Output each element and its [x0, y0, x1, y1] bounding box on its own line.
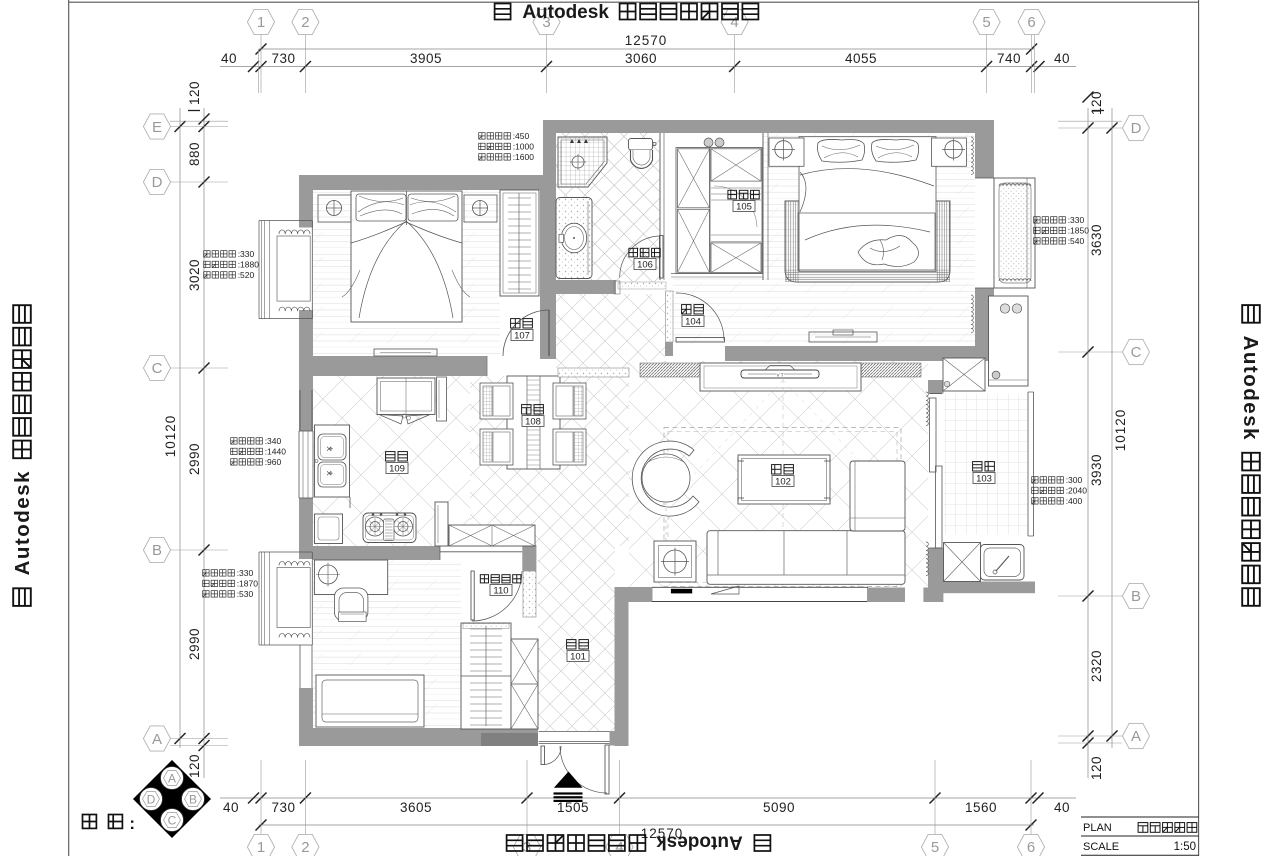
- svg-text:A: A: [152, 731, 162, 748]
- svg-text:D: D: [1131, 120, 1142, 137]
- svg-text:C: C: [168, 814, 177, 828]
- svg-text:3020: 3020: [187, 259, 202, 291]
- svg-text:5090: 5090: [763, 800, 795, 815]
- svg-text:3630: 3630: [1089, 224, 1104, 256]
- svg-text:740: 740: [997, 51, 1021, 66]
- svg-text::330: :330: [1068, 215, 1085, 225]
- svg-text:C: C: [152, 360, 163, 377]
- svg-text::530: :530: [237, 589, 254, 599]
- svg-text::1440: :1440: [265, 447, 287, 457]
- svg-text:120: 120: [187, 81, 202, 105]
- svg-text::330: :330: [237, 568, 254, 578]
- svg-text:2: 2: [301, 839, 309, 856]
- svg-text:A: A: [1131, 728, 1141, 745]
- svg-text:B: B: [152, 542, 162, 559]
- svg-text:40: 40: [1054, 800, 1070, 815]
- svg-text:3605: 3605: [400, 800, 432, 815]
- svg-text::1000: :1000: [513, 142, 535, 152]
- svg-text:110: 110: [493, 586, 508, 597]
- svg-text::330: :330: [238, 249, 255, 259]
- svg-text:V T: V T: [777, 373, 784, 378]
- svg-text:730: 730: [271, 51, 295, 66]
- svg-text:Autodesk: Autodesk: [11, 470, 34, 575]
- svg-text:3905: 3905: [410, 51, 442, 66]
- svg-text:102: 102: [775, 477, 791, 488]
- svg-text:5: 5: [931, 839, 939, 856]
- svg-text:4055: 4055: [845, 51, 877, 66]
- svg-text:104: 104: [685, 317, 701, 328]
- svg-text::400: :400: [1066, 496, 1083, 506]
- svg-text:107: 107: [514, 331, 530, 342]
- svg-text:Autodesk: Autodesk: [522, 2, 609, 23]
- svg-text:E: E: [152, 119, 162, 136]
- svg-text:120: 120: [187, 754, 202, 778]
- svg-text:6: 6: [1027, 839, 1035, 856]
- svg-text:C: C: [1131, 344, 1142, 361]
- svg-text:120: 120: [1089, 756, 1104, 780]
- svg-text:10120: 10120: [163, 415, 178, 458]
- svg-text::1600: :1600: [513, 152, 535, 162]
- svg-text::450: :450: [513, 131, 530, 141]
- svg-text:A: A: [168, 772, 176, 786]
- svg-text:6: 6: [1027, 14, 1035, 31]
- svg-text:1560: 1560: [965, 800, 997, 815]
- svg-text::1850: :1850: [1068, 226, 1090, 236]
- svg-text:2990: 2990: [187, 443, 202, 475]
- svg-text::2040: :2040: [1066, 486, 1088, 496]
- svg-text:D: D: [152, 174, 163, 191]
- svg-text:12570: 12570: [625, 33, 668, 48]
- svg-text:10120: 10120: [1113, 409, 1128, 452]
- svg-text:3060: 3060: [625, 51, 657, 66]
- svg-text:5: 5: [982, 14, 990, 31]
- svg-text:120: 120: [1089, 91, 1104, 115]
- svg-text:B: B: [1131, 588, 1141, 605]
- svg-text:1:50: 1:50: [1174, 841, 1196, 853]
- svg-text:SCALE: SCALE: [1083, 841, 1119, 853]
- svg-text::300: :300: [1066, 475, 1083, 485]
- svg-text:PLAN: PLAN: [1083, 822, 1112, 834]
- svg-text:B: B: [189, 793, 197, 807]
- svg-text:40: 40: [221, 51, 237, 66]
- svg-text::1880: :1880: [238, 260, 260, 270]
- svg-text:2990: 2990: [187, 628, 202, 660]
- svg-text::540: :540: [1068, 236, 1085, 246]
- svg-text::520: :520: [238, 270, 255, 280]
- svg-text:105: 105: [736, 202, 752, 213]
- svg-text:101: 101: [570, 652, 586, 663]
- svg-text:1: 1: [257, 14, 265, 31]
- svg-text:880: 880: [187, 142, 202, 166]
- svg-text:40: 40: [1054, 51, 1070, 66]
- svg-text::: :: [129, 814, 135, 833]
- svg-text:D: D: [147, 793, 156, 807]
- svg-text:Autodesk: Autodesk: [656, 832, 743, 853]
- svg-text::960: :960: [265, 457, 282, 467]
- svg-text:4: 4: [615, 839, 623, 856]
- svg-text:3930: 3930: [1089, 454, 1104, 486]
- svg-text:730: 730: [271, 800, 295, 815]
- svg-text:2320: 2320: [1089, 650, 1104, 682]
- svg-text:2: 2: [301, 14, 309, 31]
- svg-text:103: 103: [976, 474, 992, 485]
- svg-text:108: 108: [525, 417, 541, 428]
- svg-text:1: 1: [257, 839, 265, 856]
- svg-text:109: 109: [389, 464, 405, 475]
- svg-text:Autodesk: Autodesk: [1239, 336, 1262, 441]
- svg-text:106: 106: [637, 260, 653, 271]
- svg-text::340: :340: [265, 436, 282, 446]
- svg-text:1505: 1505: [557, 800, 589, 815]
- svg-text:40: 40: [223, 800, 239, 815]
- svg-text::1870: :1870: [237, 579, 259, 589]
